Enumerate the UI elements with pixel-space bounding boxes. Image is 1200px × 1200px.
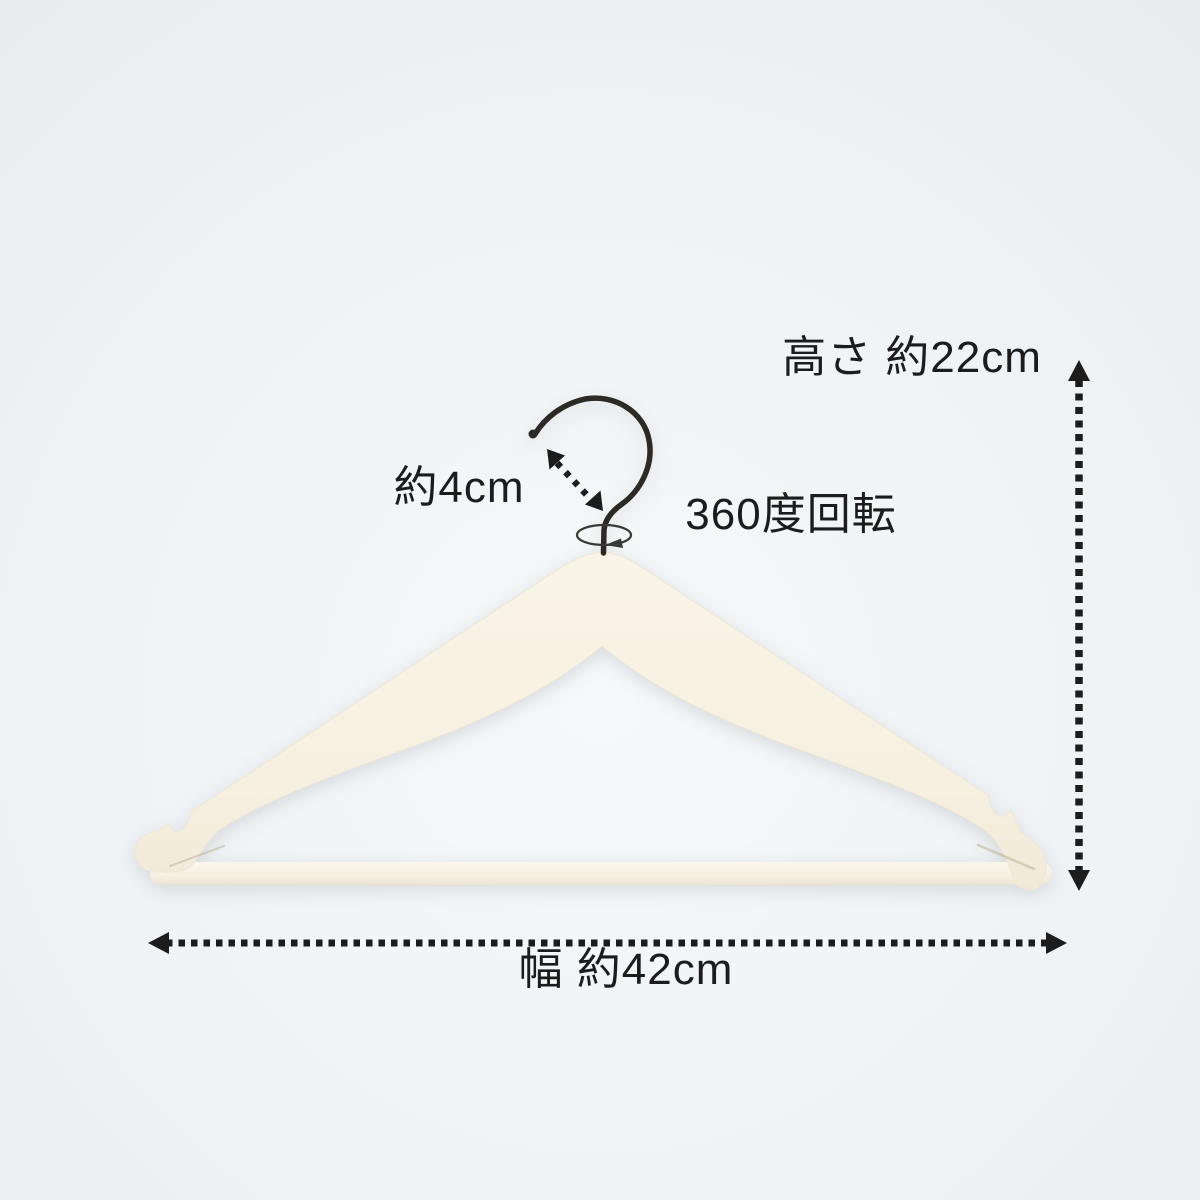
hook-size-label: 約4cm — [393, 463, 524, 512]
width-dimension-label: 幅 約42cm — [519, 945, 734, 994]
product-diagram: 高さ 約22cm 約4cm 360度回転 幅 約42cm — [0, 0, 1200, 1200]
height-dimension-label: 高さ 約22cm — [782, 333, 1042, 382]
rotation-label: 360度回転 — [685, 490, 896, 539]
hook-tip-ball — [529, 430, 538, 439]
hanger-bottom-bar — [150, 862, 1052, 885]
hanger-dimension-diagram: 高さ 約22cm 約4cm 360度回転 幅 約42cm — [0, 0, 1200, 1200]
